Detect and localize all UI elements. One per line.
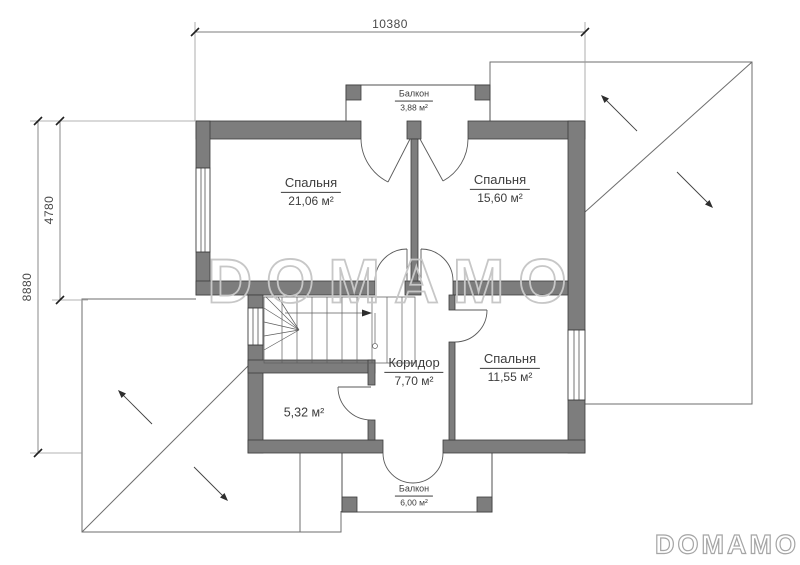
room-area: 5,32 м²	[284, 405, 325, 422]
wall-left-upper	[196, 121, 210, 168]
wall-middle-stub	[405, 281, 421, 295]
door-storage	[338, 387, 371, 420]
balcony-pillar	[477, 497, 492, 512]
wall-bottom-left	[248, 440, 383, 453]
window-stairs	[248, 308, 263, 345]
room-area: 21,06 м²	[281, 193, 341, 209]
roof-slope-arrow-line	[194, 467, 225, 498]
stair-direction-line	[285, 313, 375, 343]
room-area: 15,60 м²	[470, 190, 530, 206]
room-label-storage: 5,32 м²	[284, 405, 325, 422]
room-name: Балкон	[395, 484, 433, 497]
dimension-lines	[30, 22, 589, 457]
wall-corridor-partition-lower	[449, 342, 455, 440]
dimension-label-width: 10380	[372, 17, 408, 31]
room-name: Балкон	[395, 89, 433, 102]
room-area: 7,70 м²	[384, 373, 443, 389]
floor-plan-drawing	[0, 0, 800, 565]
roof-left-hip-line	[82, 362, 252, 532]
stair-start-marker	[373, 344, 378, 349]
wall-storage-right-lower	[368, 420, 375, 440]
floor-plan-canvas: 10380 4780 8880 Балкон 3,88 м² Спальня 2…	[0, 0, 800, 565]
stair-winder-treads	[264, 297, 299, 350]
door-balcony-top-right	[420, 139, 468, 181]
wall-bottom-right	[443, 440, 585, 453]
room-label-bedroom3: Спальня 11,55 м²	[480, 351, 540, 385]
roof-slope-arrow-line	[121, 393, 152, 424]
door-balcony-bottom	[383, 453, 443, 483]
door-bedroom3	[455, 310, 487, 342]
wall-stair-left-upper	[248, 295, 263, 308]
wall-corridor-partition-upper	[449, 295, 455, 310]
wall-storage-right-upper	[368, 360, 375, 385]
dimension-label-upper-height: 4780	[42, 196, 56, 225]
roof-slope-arrow-line	[604, 98, 637, 131]
door-balcony-top-left	[361, 139, 410, 182]
stair-direction-arrowhead	[362, 310, 372, 317]
wall-right-upper	[568, 121, 585, 330]
wall-middle-right	[453, 281, 568, 295]
wall-bedroom-partition	[411, 139, 418, 281]
room-name: Спальня	[480, 351, 540, 369]
roof-slope-arrow-line	[677, 172, 710, 205]
stair-boundary	[264, 297, 415, 363]
window-bedroom1	[196, 168, 210, 252]
wall-middle-left	[196, 281, 375, 295]
window-bedroom3	[568, 330, 585, 400]
room-label-balcony-top: Балкон 3,88 м²	[395, 89, 433, 114]
door-bedroom2	[421, 249, 453, 281]
room-area: 11,55 м²	[480, 369, 540, 385]
stair-treads	[282, 297, 402, 363]
roof-right-ridge-line	[585, 62, 752, 212]
room-label-balcony-bottom: Балкон 6,00 м²	[395, 484, 433, 509]
room-area: 6,00 м²	[395, 497, 433, 509]
walls	[196, 121, 585, 453]
room-name: Спальня	[281, 175, 341, 193]
room-name: Спальня	[470, 172, 530, 190]
room-area: 3,88 м²	[395, 102, 433, 114]
staircase	[264, 297, 415, 363]
wall-storage-top	[248, 360, 375, 373]
room-name: Коридор	[384, 355, 443, 373]
room-label-bedroom1: Спальня 21,06 м²	[281, 175, 341, 209]
balcony-pillar	[342, 497, 357, 512]
wall-top-right	[468, 121, 585, 139]
balcony-pillar	[346, 85, 361, 100]
room-label-corridor: Коридор 7,70 м²	[384, 355, 443, 389]
dimension-label-total-height: 8880	[20, 273, 34, 302]
wall-top-left	[196, 121, 361, 139]
room-label-bedroom2: Спальня 15,60 м²	[470, 172, 530, 206]
door-bedroom1	[375, 249, 407, 281]
wall-balcony-pier	[407, 121, 421, 139]
balcony-pillar	[475, 85, 490, 100]
